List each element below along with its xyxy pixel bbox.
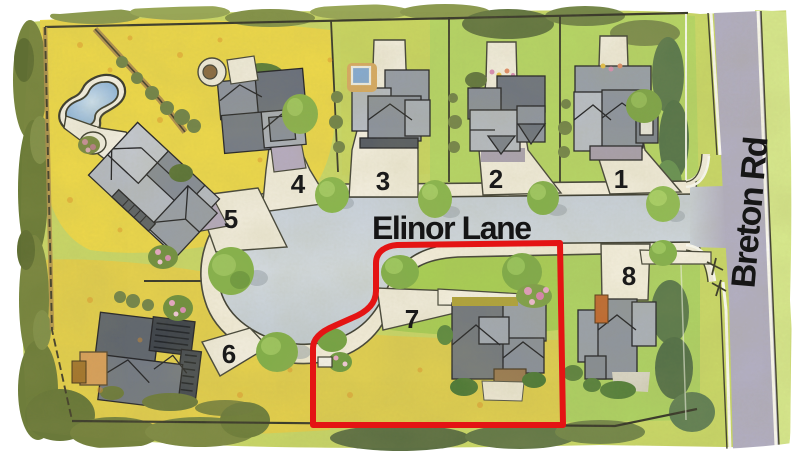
svg-text:8: 8 bbox=[622, 261, 636, 291]
svg-text:4: 4 bbox=[291, 169, 306, 199]
svg-text:5: 5 bbox=[224, 204, 238, 234]
svg-text:7: 7 bbox=[405, 304, 419, 334]
svg-text:2: 2 bbox=[489, 164, 503, 194]
svg-text:6: 6 bbox=[222, 339, 236, 369]
svg-text:Elinor Lane: Elinor Lane bbox=[372, 210, 532, 246]
svg-text:1: 1 bbox=[614, 164, 628, 194]
svg-text:3: 3 bbox=[376, 166, 390, 196]
